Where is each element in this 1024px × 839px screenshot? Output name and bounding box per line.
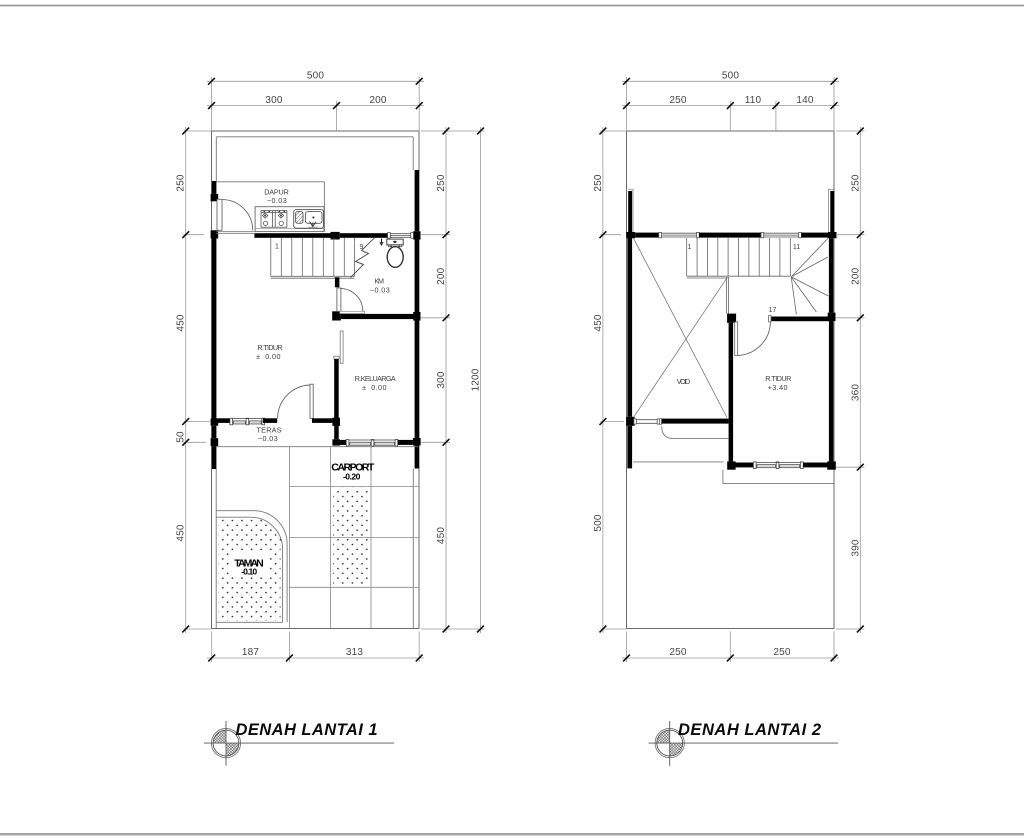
svg-text:−0.03: −0.03 bbox=[258, 434, 278, 443]
svg-text:+3.40: +3.40 bbox=[768, 383, 788, 392]
svg-text:R.TIDUR: R.TIDUR bbox=[765, 374, 791, 383]
svg-text:9: 9 bbox=[360, 244, 364, 251]
svg-text:250: 250 bbox=[669, 647, 687, 658]
svg-text:± 0.00: ± 0.00 bbox=[256, 352, 281, 361]
svg-text:−0.03: −0.03 bbox=[370, 285, 390, 294]
svg-text:DENAH LANTAI 2: DENAH LANTAI 2 bbox=[678, 721, 821, 739]
svg-text:450: 450 bbox=[176, 314, 187, 332]
svg-text:11: 11 bbox=[793, 244, 800, 251]
svg-text:450: 450 bbox=[176, 524, 187, 542]
svg-text:R.KELUARGA: R.KELUARGA bbox=[355, 374, 396, 383]
svg-text:1: 1 bbox=[275, 244, 279, 251]
svg-text:110: 110 bbox=[745, 95, 762, 106]
svg-text:250: 250 bbox=[850, 174, 861, 192]
svg-text:140: 140 bbox=[796, 95, 814, 106]
svg-text:50: 50 bbox=[176, 431, 187, 443]
svg-text:-0.10: -0.10 bbox=[241, 567, 257, 577]
svg-text:200: 200 bbox=[369, 95, 387, 106]
svg-text:± 0.00: ± 0.00 bbox=[362, 383, 387, 392]
svg-text:500: 500 bbox=[722, 71, 740, 82]
svg-text:187: 187 bbox=[242, 647, 260, 658]
svg-text:450: 450 bbox=[436, 527, 447, 545]
svg-text:450: 450 bbox=[593, 314, 604, 332]
svg-text:250: 250 bbox=[593, 174, 604, 192]
svg-text:250: 250 bbox=[773, 647, 791, 658]
svg-text:250: 250 bbox=[176, 174, 187, 192]
svg-text:390: 390 bbox=[850, 539, 861, 557]
svg-text:−0.03: −0.03 bbox=[267, 196, 287, 205]
svg-text:500: 500 bbox=[593, 514, 604, 532]
svg-text:KM: KM bbox=[374, 277, 384, 286]
svg-text:250: 250 bbox=[669, 95, 687, 106]
svg-text:VOID: VOID bbox=[677, 377, 691, 386]
svg-text:300: 300 bbox=[265, 95, 283, 106]
svg-text:R.TIDUR: R.TIDUR bbox=[257, 343, 282, 352]
svg-text:1: 1 bbox=[688, 244, 692, 251]
svg-text:-0.20: -0.20 bbox=[343, 471, 361, 481]
svg-text:500: 500 bbox=[307, 71, 325, 82]
svg-text:DENAH LANTAI 1: DENAH LANTAI 1 bbox=[236, 721, 378, 739]
svg-text:300: 300 bbox=[436, 371, 447, 389]
svg-text:250: 250 bbox=[436, 174, 447, 192]
svg-text:17: 17 bbox=[769, 307, 777, 314]
svg-text:200: 200 bbox=[436, 267, 447, 285]
svg-text:313: 313 bbox=[346, 647, 364, 658]
svg-text:1200: 1200 bbox=[471, 368, 482, 391]
svg-text:360: 360 bbox=[850, 384, 861, 402]
svg-text:200: 200 bbox=[850, 267, 861, 285]
